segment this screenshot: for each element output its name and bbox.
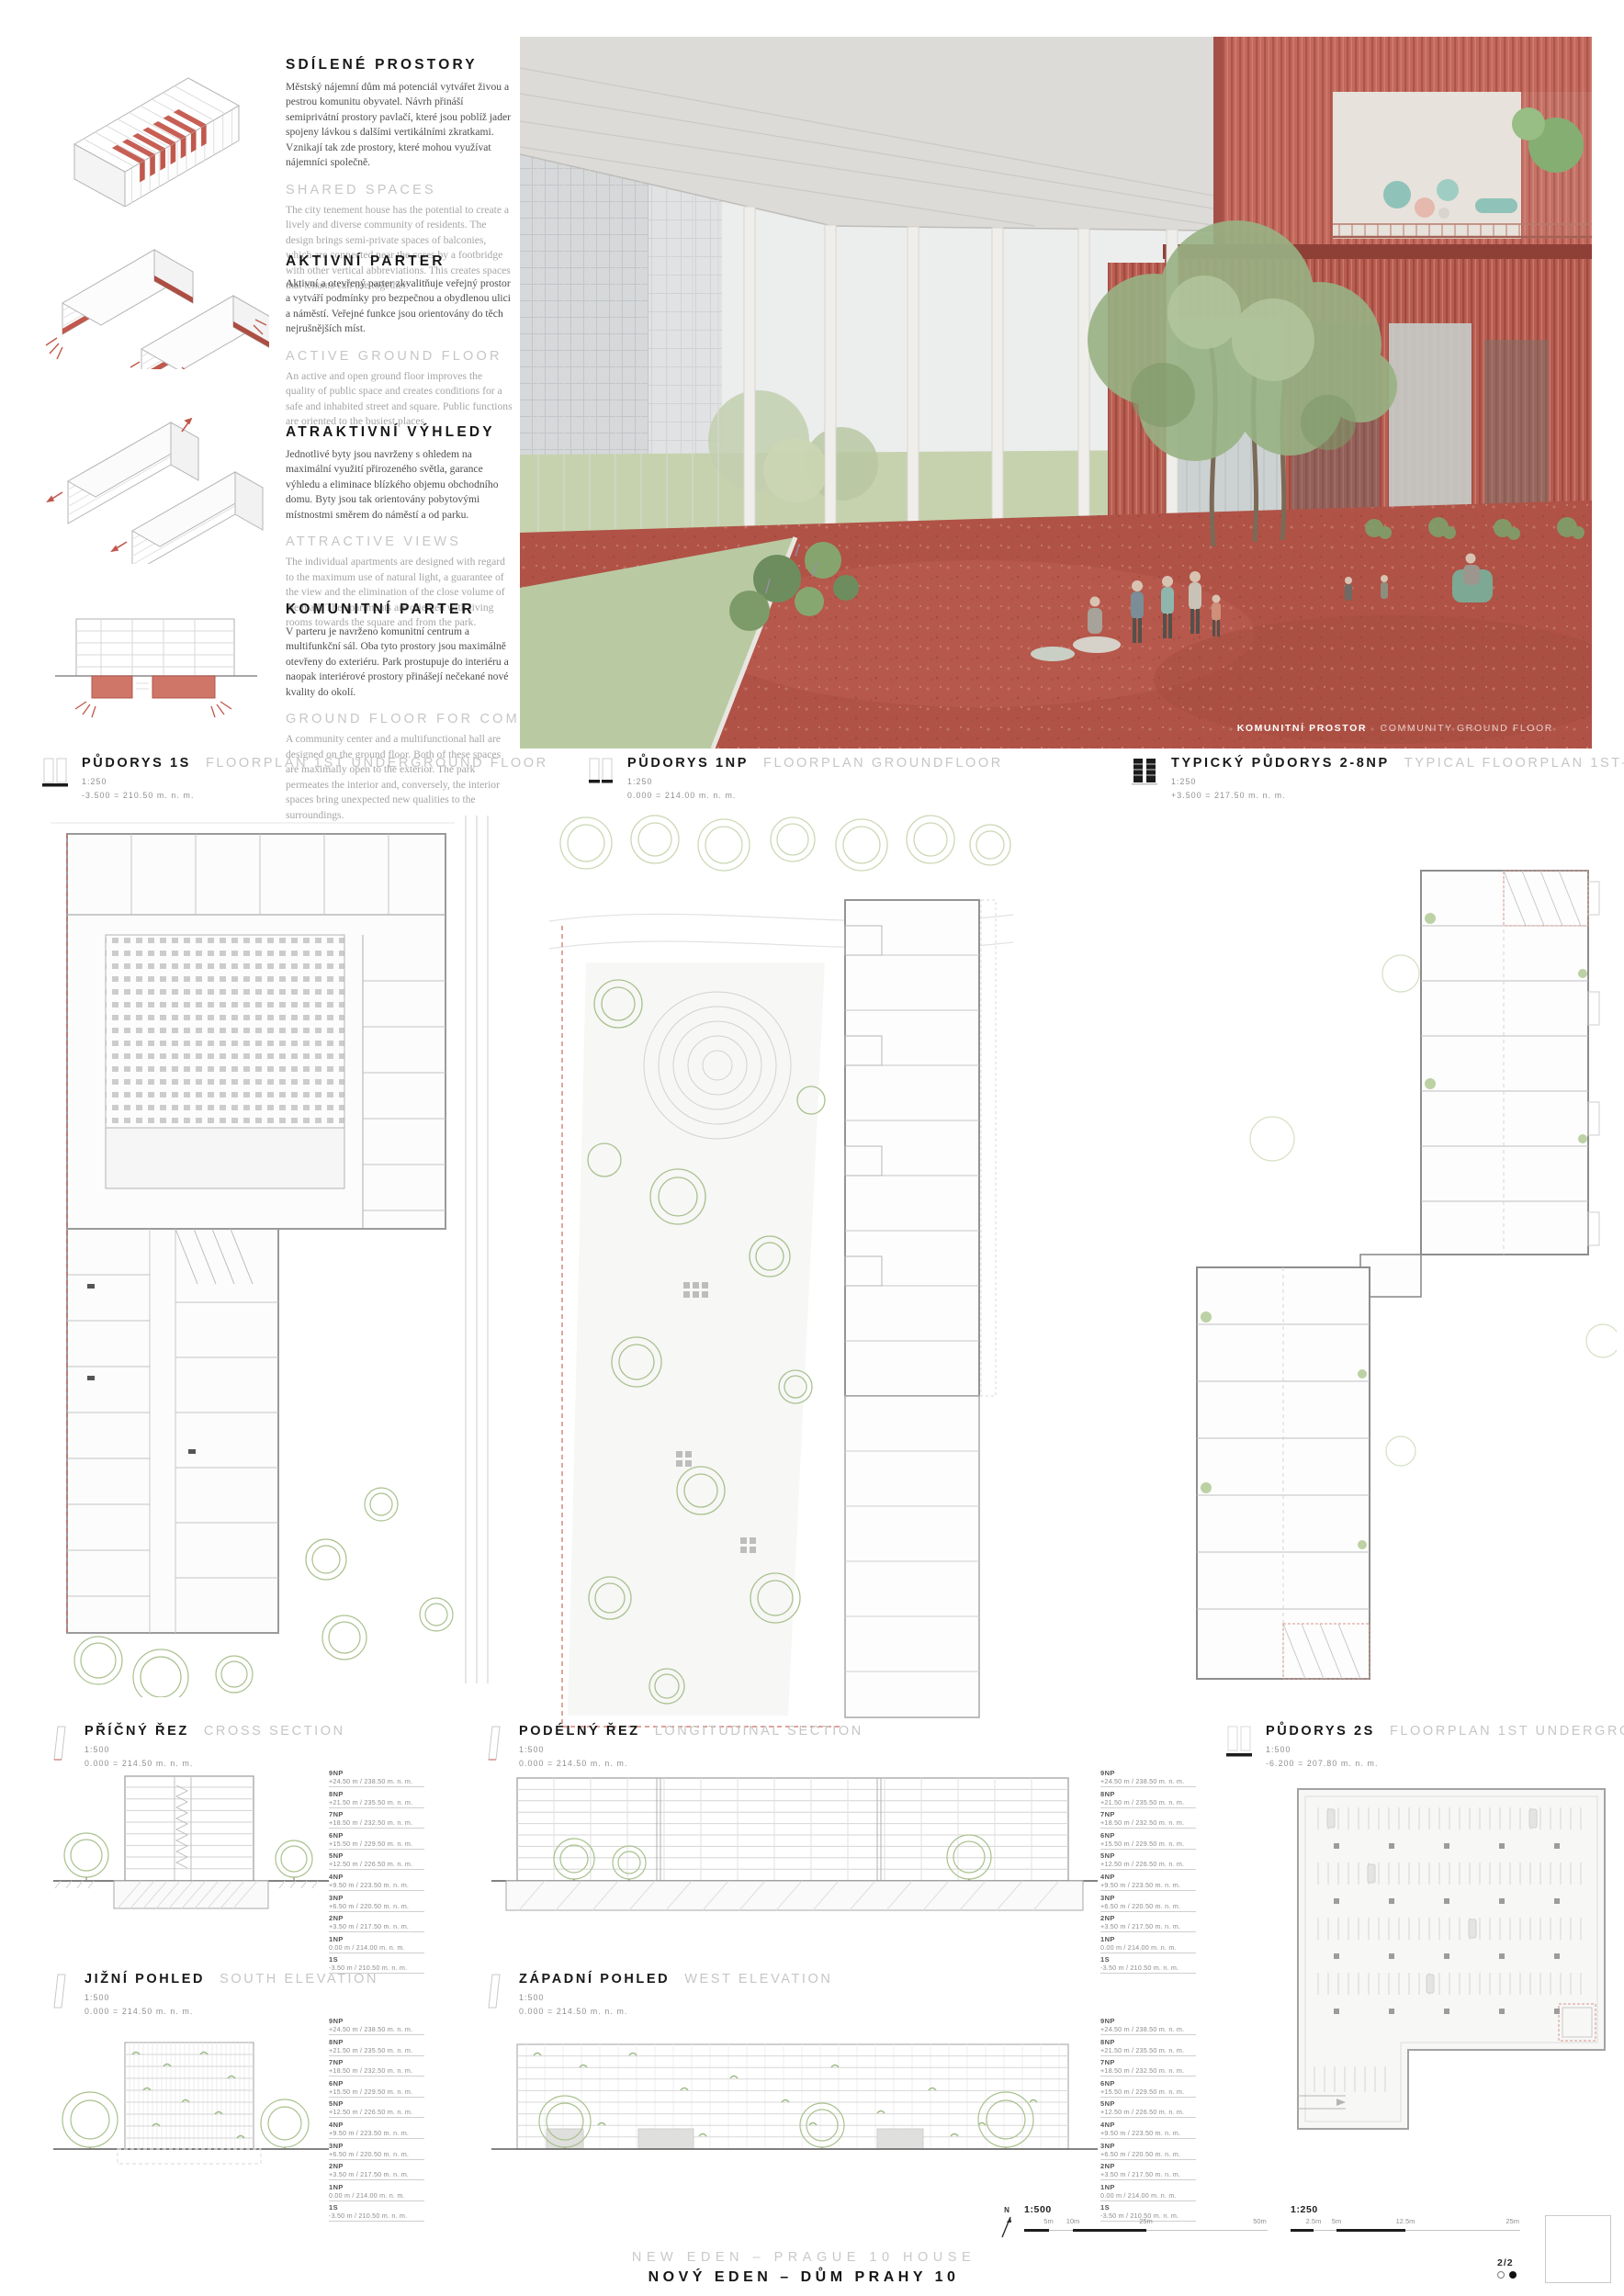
longitudinal-floor-levels: 9NP+24.50 m / 238.50 m. n. m.8NP+21.50 m… [1100, 1769, 1196, 1976]
cross-section-floor-levels: 9NP+24.50 m / 238.50 m. n. m.8NP+21.50 m… [329, 1769, 424, 1976]
scalebar-segment [1291, 2229, 1314, 2232]
scalebar-bar: 2.5m5m12.5m25m [1291, 2216, 1520, 2231]
active-ground-floor-axonometric [44, 231, 269, 369]
section-title-cz: PŘÍČNÝ ŘEZ [85, 1724, 189, 1739]
drawing-west-elevation [491, 2011, 1098, 2177]
drawing-plan-1np [549, 797, 1013, 1757]
section-scale: 1:500 [85, 1743, 345, 1757]
scalebar-label: 1:500 [1024, 2204, 1268, 2215]
concept-title-cz: KOMUNITNÍ PARTER [286, 602, 513, 618]
west-elevation-linework [491, 2011, 1098, 2172]
main-rendering: KOMUNITNÍ PROSTOR COMMUNITY GROUND FLOOR [520, 37, 1592, 748]
header-plan-typical: TYPICKÝ PŮDORYS 2-8NPTYPICAL FLOORPLAN 1… [1132, 755, 1624, 802]
scalebar-segment [1024, 2229, 1049, 2232]
concept-title-cz: SDÍLENÉ PROSTORY [286, 57, 513, 73]
board-title-en: NEW EDEN – PRAGUE 10 HOUSE [542, 2250, 1066, 2265]
north-label: N [997, 2206, 1017, 2214]
diagram-active-ground-floor [44, 231, 269, 374]
drawing-plan-2s [1281, 1763, 1621, 2154]
plan-title-cz: TYPICKÝ PŮDORYS 2-8NP [1171, 756, 1390, 771]
stamp-box [1545, 2215, 1611, 2283]
rendering-scene [520, 37, 1592, 748]
community-ground-floor-elevation [44, 606, 269, 721]
scalebar-segment [1336, 2229, 1405, 2232]
plan-2s-linework [1281, 1763, 1621, 2149]
page-marker: 2/2 [1497, 2257, 1539, 2279]
south-elevation-floor-levels: 9NP+24.50 m / 238.50 m. n. m.8NP+21.50 m… [329, 2017, 424, 2224]
level-pictogram-icon [42, 757, 70, 790]
scalebar-ticks: 2.5m5m12.5m25m [1291, 2217, 1520, 2228]
cross-section-linework [53, 1763, 329, 1924]
plan-title-en: FLOORPLAN 1ST UNDERGROUND FLOOR [206, 756, 548, 771]
section-title-en: WEST ELEVATION [684, 1972, 832, 1986]
plan-1s-linework [51, 806, 510, 1697]
rendering-caption: KOMUNITNÍ PROSTOR COMMUNITY GROUND FLOOR [1237, 723, 1553, 734]
level-pictogram-icon [1132, 757, 1159, 790]
concept-active-ground-floor: AKTIVNÍ PARTER Aktivní a otevřený parter… [286, 253, 513, 430]
plan-level: +3.500 = 217.50 m. n. m. [1171, 789, 1624, 803]
longitudinal-section-linework [491, 1763, 1098, 1924]
section-title-en: FLOORPLAN 1ST UNDERGROUND FLOOR [1390, 1724, 1624, 1739]
diagram-attractive-views [44, 408, 269, 568]
section-scale: 1:500 [1266, 1743, 1624, 1757]
north-arrow: N [997, 2206, 1017, 2244]
concept-text-cz: Jednotlivé byty jsou navrženy s ohledem … [286, 447, 513, 523]
west-elevation-floor-levels: 9NP+24.50 m / 238.50 m. n. m.8NP+21.50 m… [1100, 2017, 1196, 2224]
plan-level: -3.500 = 210.50 m. n. m. [82, 789, 548, 803]
plan-title-en: FLOORPLAN GROUNDFLOOR [763, 756, 1003, 771]
drawing-plan-typical [1180, 863, 1617, 1699]
elevation-icon [51, 1973, 73, 2009]
shared-spaces-axonometric [44, 55, 269, 207]
concept-text-cz: V parteru je navrženo komunitní centrum … [286, 625, 513, 700]
section-scale: 1:500 [85, 1991, 378, 2005]
concept-title-en: ACTIVE GROUND FLOOR [286, 349, 513, 364]
south-elevation-linework [53, 2011, 329, 2172]
page-dot-filled-icon [1509, 2271, 1517, 2279]
diagram-shared-spaces [44, 55, 269, 211]
diagram-community-ground-floor [44, 606, 269, 726]
scalebar-1-250: 1:250 2.5m5m12.5m25m [1291, 2204, 1520, 2231]
concept-text-en: An active and open ground floor improves… [286, 369, 513, 430]
rendering-caption-en: COMMUNITY GROUND FLOOR [1381, 723, 1553, 734]
section-cut-icon [485, 1725, 507, 1761]
plan-title-cz: PŮDORYS 1S [82, 756, 191, 771]
plan-scale: 1:250 [82, 775, 548, 789]
concept-attractive-views: ATRAKTIVNÍ VÝHLEDY Jednotlivé byty jsou … [286, 424, 513, 631]
plan-scale: 1:250 [627, 775, 1003, 789]
concept-title-cz: AKTIVNÍ PARTER [286, 253, 513, 270]
scalebar-ticks: 5m10m25m50m [1024, 2217, 1268, 2228]
drawing-south-elevation [53, 2011, 329, 2177]
scalebar-1-500: 1:500 5m10m25m50m [1024, 2204, 1268, 2231]
drawing-cross-section [53, 1763, 329, 1929]
concept-text-cz: Městský nájemní dům má potenciál vytváře… [286, 80, 513, 171]
concept-title-en: ATTRACTIVE VIEWS [286, 535, 513, 549]
elevation-icon [485, 1973, 507, 2009]
plan-1np-linework [549, 797, 1013, 1752]
page-number: 2/2 [1497, 2257, 1539, 2268]
scalebar-label: 1:250 [1291, 2204, 1520, 2215]
section-title-cz: ZÁPADNÍ POHLED [519, 1972, 670, 1986]
concept-title-en: GROUND FLOOR FOR COMMUNITY [286, 712, 513, 726]
section-title-cz: JIŽNÍ POHLED [85, 1972, 205, 1986]
page-dot-empty-icon [1497, 2271, 1505, 2279]
header-plan-1s: PŮDORYS 1SFLOORPLAN 1ST UNDERGROUND FLOO… [42, 755, 548, 802]
level-pictogram-icon [588, 757, 615, 790]
scalebar-segment [1073, 2229, 1146, 2232]
drawing-longitudinal-section [491, 1763, 1098, 1929]
concept-text-cz: Aktivní a otevřený parter zkvalitňuje ve… [286, 276, 513, 337]
scalebar-bar: 5m10m25m50m [1024, 2216, 1268, 2231]
section-title-cz: PODÉLNÝ ŘEZ [519, 1724, 640, 1739]
page-dots [1497, 2271, 1539, 2279]
attractive-views-axonometric [44, 408, 269, 564]
concept-title-en: SHARED SPACES [286, 183, 513, 197]
drawing-plan-1s [51, 806, 510, 1702]
north-arrow-icon [999, 2215, 1014, 2239]
plan-typical-linework [1180, 863, 1617, 1694]
header-plan-1np: PŮDORYS 1NPFLOORPLAN GROUNDFLOOR 1:2500.… [588, 755, 1003, 802]
rendering-caption-cz: KOMUNITNÍ PROSTOR [1237, 723, 1367, 734]
concept-title-cz: ATRAKTIVNÍ VÝHLEDY [286, 424, 513, 441]
board-title-cz: NOVÝ EDEN – DŮM PRAHY 10 [542, 2269, 1066, 2286]
board-title: NEW EDEN – PRAGUE 10 HOUSE NOVÝ EDEN – D… [542, 2250, 1066, 2286]
section-scale: 1:500 [519, 1743, 863, 1757]
level-pictogram-icon [1226, 1725, 1254, 1758]
section-title-en: CROSS SECTION [204, 1724, 345, 1739]
plan-title-cz: PŮDORYS 1NP [627, 756, 749, 771]
plan-title-en: TYPICAL FLOORPLAN 1ST–8TH LEVEL [1404, 756, 1624, 771]
plan-scale: 1:250 [1171, 775, 1624, 789]
presentation-board: SDÍLENÉ PROSTORY Městský nájemní dům má … [0, 0, 1624, 2296]
section-title-en: LONGITUDINAL SECTION [655, 1724, 863, 1739]
section-cut-icon [51, 1725, 73, 1761]
section-title-cz: PŮDORYS 2S [1266, 1724, 1375, 1739]
section-scale: 1:500 [519, 1991, 833, 2005]
